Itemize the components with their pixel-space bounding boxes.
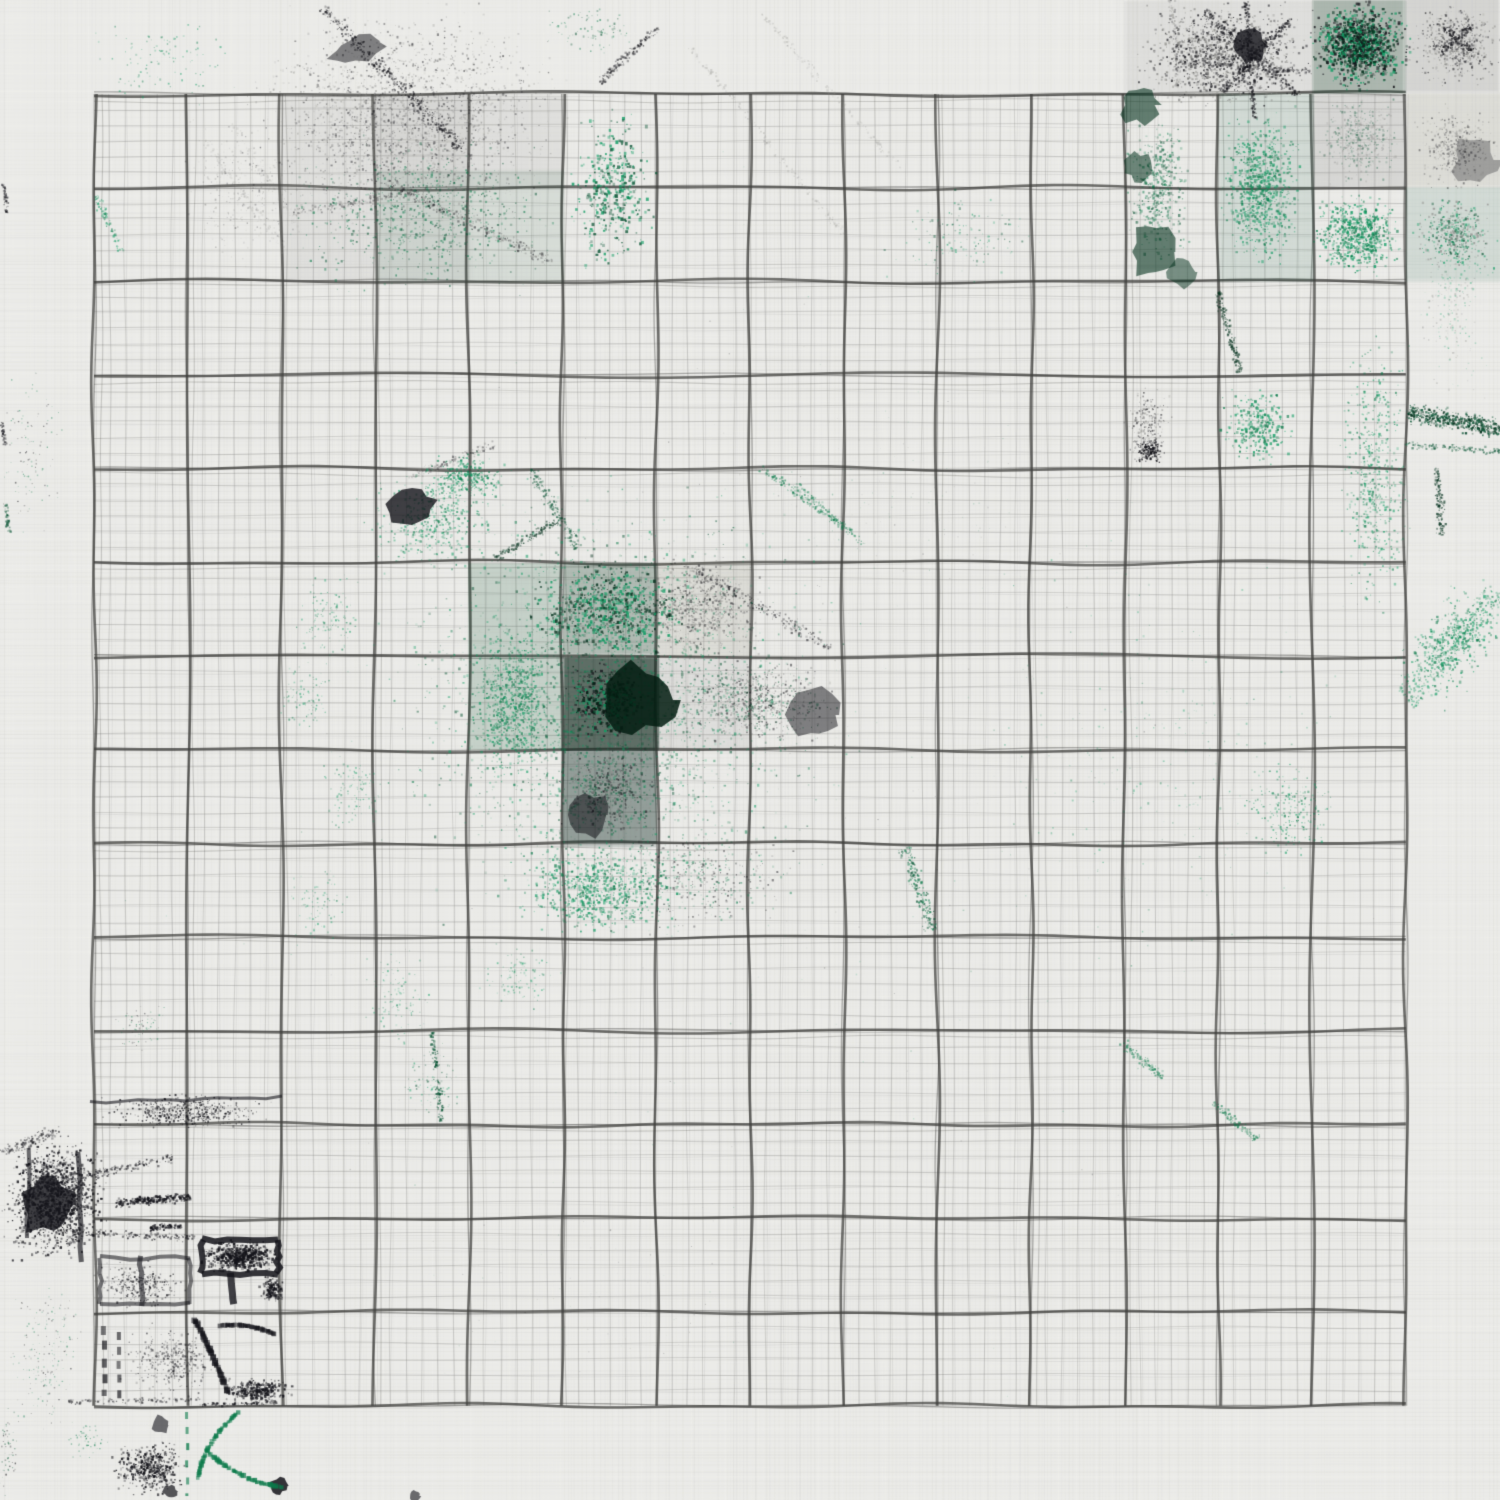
artwork xyxy=(0,0,1500,1500)
artwork-canvas xyxy=(0,0,1500,1500)
